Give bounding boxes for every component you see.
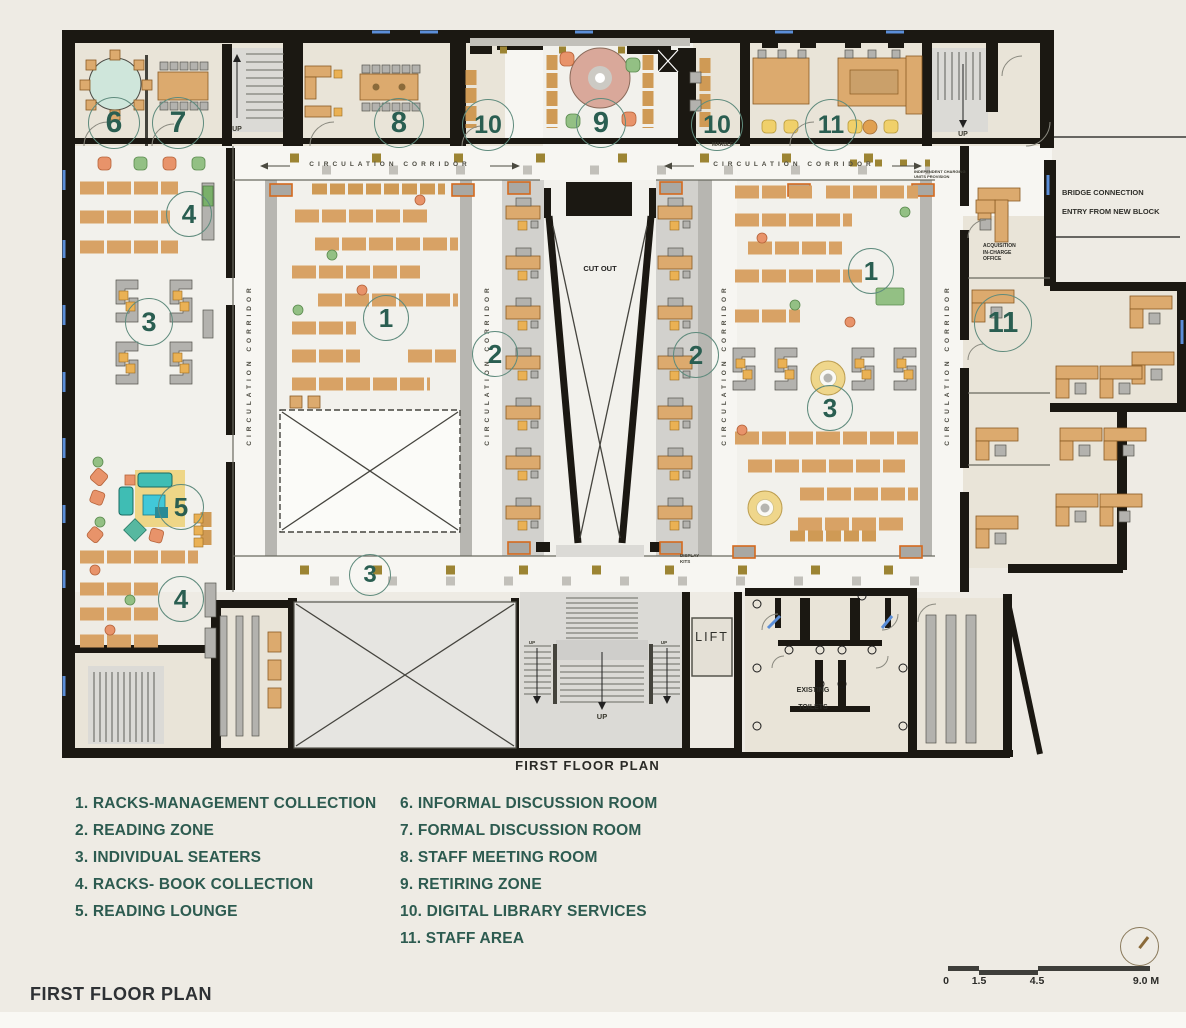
existing-toilets-line1: EXISTING [782, 687, 844, 696]
corridor-label-top-left: CIRCULATION CORRIDOR [292, 161, 488, 173]
legend-item: 4. RACKS- BOOK COLLECTION [75, 871, 376, 898]
up-label-top-left: UP [226, 126, 248, 133]
north-needle [1138, 936, 1149, 949]
scale-bar: 0 1.5 4.5 9.0 M [940, 962, 1160, 998]
page-title: FIRST FLOOR PLAN [30, 984, 212, 1005]
existing-toilets-label: EXISTING TOILETS [782, 678, 844, 721]
scale-segment [1038, 966, 1150, 971]
room-marker-10-right: 10 [691, 99, 743, 151]
room-marker-5: 5 [158, 484, 204, 530]
corridor-label-top-right: CIRCULATION CORRIDOR [696, 161, 892, 173]
room-marker-4-upper: 4 [166, 191, 212, 237]
footer-strip [0, 1012, 1186, 1028]
bridge-line2: ENTRY FROM NEW BLOCK [1062, 207, 1184, 217]
room-marker-3-bottom: 3 [349, 554, 391, 596]
room-marker-3-right: 3 [807, 385, 853, 431]
scale-segment [948, 966, 979, 971]
up-label-stairs-left: UP [524, 640, 540, 645]
legend-item: 1. RACKS-MANAGEMENT COLLECTION [75, 790, 376, 817]
independent-charging-label: INDEPENDENT CHARGING UNITS PROVISION [914, 169, 966, 179]
scale-segment [979, 970, 1038, 975]
legend-column-right: 6. INFORMAL DISCUSSION ROOM 7. FORMAL DI… [400, 790, 657, 952]
lift-label: LIFT [690, 630, 734, 644]
scale-tick: 0 [938, 975, 954, 987]
legend-item: 11. STAFF AREA [400, 925, 657, 952]
legend-column-left: 1. RACKS-MANAGEMENT COLLECTION 2. READIN… [75, 790, 376, 925]
room-marker-1-left: 1 [363, 295, 409, 341]
room-marker-11-top: 11 [805, 99, 857, 151]
room-marker-6: 6 [88, 97, 140, 149]
north-arrow-icon [1120, 927, 1159, 966]
legend-item: 2. READING ZONE [75, 817, 376, 844]
legend-item: 10. DIGITAL LIBRARY SERVICES [400, 898, 657, 925]
legend-item: 5. READING LOUNGE [75, 898, 376, 925]
scale-tick: 9.0 M [1124, 975, 1168, 987]
bridge-connection-label: BRIDGE CONNECTION ENTRY FROM NEW BLOCK [1062, 178, 1184, 226]
room-marker-2-right: 2 [673, 332, 719, 378]
acquisition-office-label: ACQUISITION IN-CHARGE OFFICE [983, 243, 1023, 263]
corridor-label-inner-right: CIRCULATION CORRIDOR [717, 240, 731, 490]
room-marker-7: 7 [152, 97, 204, 149]
scale-tick: 1.5 [966, 975, 992, 987]
plan-caption: FIRST FLOOR PLAN [495, 758, 680, 773]
scale-tick: 4.5 [1024, 975, 1050, 987]
corridor-label-right: CIRCULATION CORRIDOR [940, 240, 954, 490]
cut-out-label: CUT OUT [572, 264, 628, 273]
display-label: DISPLAY KITS [680, 553, 706, 564]
floor-plan-page: CIRCULATION CORRIDOR CIRCULATION CORRIDO… [0, 0, 1186, 1028]
room-marker-4-lower: 4 [158, 576, 204, 622]
up-label-top-right: UP [952, 131, 974, 138]
bridge-line1: BRIDGE CONNECTION [1062, 188, 1184, 198]
legend-item: 6. INFORMAL DISCUSSION ROOM [400, 790, 657, 817]
room-marker-9: 9 [576, 98, 626, 148]
room-marker-10-left: 10 [462, 99, 514, 151]
room-marker-11-right: 11 [974, 294, 1032, 352]
up-label-stairs-right: UP [656, 640, 672, 645]
legend-item: 7. FORMAL DISCUSSION ROOM [400, 817, 657, 844]
legend-item: 3. INDIVIDUAL SEATERS [75, 844, 376, 871]
corridor-label-left: CIRCULATION CORRIDOR [242, 240, 256, 490]
legend-item: 9. RETIRING ZONE [400, 871, 657, 898]
room-marker-1-right: 1 [848, 248, 894, 294]
existing-toilets-line2: TOILETS [782, 704, 844, 713]
room-marker-8: 8 [374, 98, 424, 148]
room-marker-2-left: 2 [472, 331, 518, 377]
room-marker-3-left: 3 [125, 298, 173, 346]
up-label-stairs-center: UP [591, 712, 613, 721]
legend-item: 8. STAFF MEETING ROOM [400, 844, 657, 871]
